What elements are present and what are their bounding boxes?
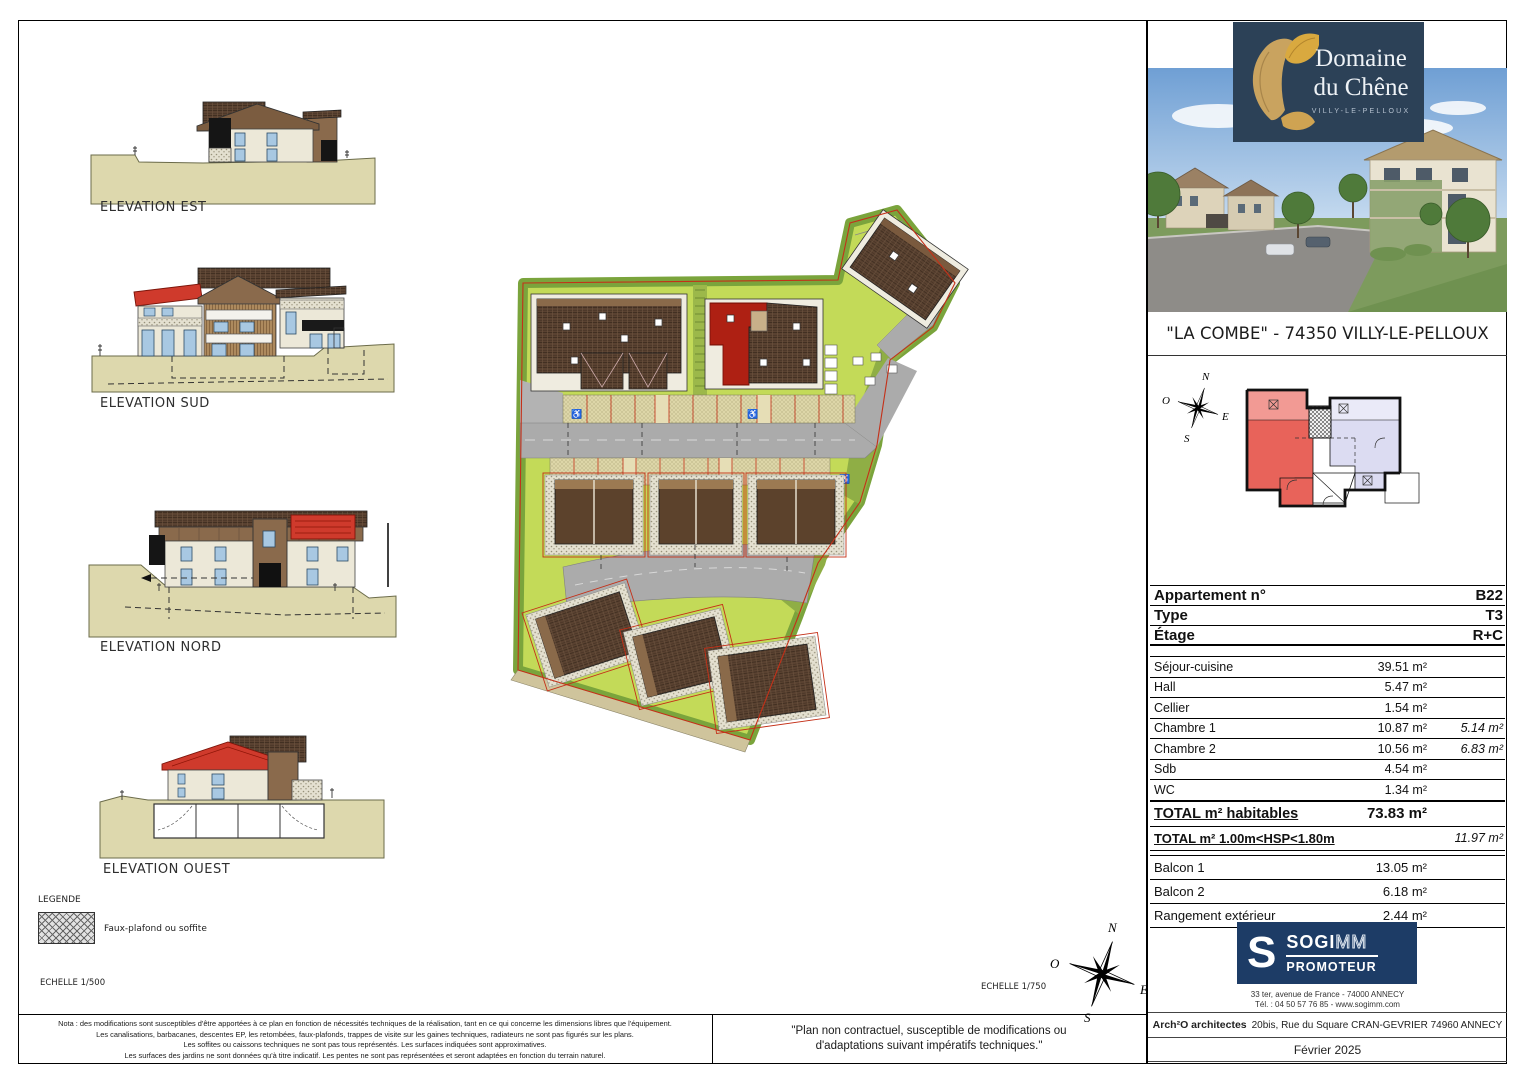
annex-area: 13.05 m² xyxy=(1349,860,1427,875)
legend-title: LEGENDE xyxy=(38,895,81,905)
annex-area: 6.18 m² xyxy=(1349,884,1427,899)
table-row-balcony1: Balcon 1 13.05 m² xyxy=(1150,856,1505,880)
promoter-address: 33 ter, avenue de France - 74000 ANNECY xyxy=(1148,990,1507,1000)
table-row-room: Chambre 1 10.87 m² 5.14 m² xyxy=(1150,719,1505,740)
table-row-apartment: Appartement n° B22 xyxy=(1150,586,1505,606)
room-area: 39.51 m² xyxy=(1349,660,1427,674)
total-area: 73.83 m² xyxy=(1349,805,1427,822)
sogimm-name: SOGIMM xyxy=(1286,932,1378,953)
room-area: 10.56 m² xyxy=(1349,742,1427,756)
nota-line: Nota : des modifications sont susceptibl… xyxy=(18,1019,712,1030)
project-logo: Domaine du Chêne VILLY-LE-PELLOUX xyxy=(1233,22,1424,142)
table-row-room: Séjour-cuisine 39.51 m² xyxy=(1150,657,1505,678)
handicap-icon: ♿ xyxy=(747,408,758,419)
nota-line: Les canalisations, barbacanes, descentes… xyxy=(18,1030,712,1041)
logo-title: Domaine du Chêne xyxy=(1303,44,1419,102)
building-b-roof-highlight xyxy=(705,299,823,389)
date-row: Février 2025 xyxy=(1148,1038,1507,1062)
elevation-nord-label: ELEVATION NORD xyxy=(100,640,221,655)
table-row-balcony2: Balcon 2 6.18 m² xyxy=(1150,880,1505,904)
legend-item-label: Faux-plafond ou soffite xyxy=(104,924,207,934)
elevation-ouest-label: ELEVATION OUEST xyxy=(103,862,230,877)
elevation-est-drawing xyxy=(85,78,380,210)
room-area: 4.54 m² xyxy=(1349,762,1427,776)
promoter-phone: Tél. : 04 50 57 76 85 - www.sogimm.com xyxy=(1148,1000,1507,1010)
locator-compass-icon: N O E S xyxy=(1156,368,1236,448)
table-row-total-habitable: TOTAL m² habitables 73.83 m² xyxy=(1150,801,1505,827)
scale-500-label: ECHELLE 1/500 xyxy=(40,978,105,988)
disclaimer-line: "Plan non contractuel, susceptible de mo… xyxy=(791,1024,1066,1039)
elevation-sud-drawing xyxy=(88,256,398,396)
table-row-room: Cellier 1.54 m² xyxy=(1150,698,1505,719)
room-label: Hall xyxy=(1150,680,1349,694)
room-hsp: 5.14 m² xyxy=(1427,721,1505,735)
room-area: 10.87 m² xyxy=(1349,721,1427,735)
floor-value: R+C xyxy=(1427,627,1505,644)
site-plan-drawing: ♿ ♿ ♿ xyxy=(505,195,1060,780)
apartment-number-label: Appartement n° xyxy=(1150,587,1427,604)
elevation-ouest-drawing xyxy=(92,730,392,862)
room-label: Chambre 2 xyxy=(1150,742,1349,756)
table-row-floor: Étage R+C xyxy=(1150,626,1505,646)
handicap-icon: ♿ xyxy=(571,408,582,419)
elevation-nord-drawing xyxy=(85,495,400,645)
table-gap xyxy=(1150,646,1505,657)
room-label: Sdb xyxy=(1150,762,1349,776)
total-label: TOTAL m² habitables xyxy=(1150,806,1349,822)
table-row-type: Type T3 xyxy=(1150,606,1505,626)
total-hsp-label: TOTAL m² 1.00m<HSP<1.80m xyxy=(1150,831,1349,846)
table-row-total-hsp: TOTAL m² 1.00m<HSP<1.80m 11.97 m² xyxy=(1150,827,1505,851)
legend-swatch xyxy=(38,912,95,944)
room-area: 1.54 m² xyxy=(1349,701,1427,715)
svg-text:S: S xyxy=(1184,433,1190,445)
nota-box: Nota : des modifications sont susceptibl… xyxy=(18,1014,712,1064)
svg-text:N: N xyxy=(1107,920,1118,935)
middle-row-houses xyxy=(543,473,846,557)
type-value: T3 xyxy=(1427,607,1505,624)
scale-750-label: ECHELLE 1/750 xyxy=(981,982,1046,992)
architect-row: Arch²O architectes 20bis, Rue du Square … xyxy=(1148,1012,1507,1038)
svg-text:E: E xyxy=(1221,411,1229,423)
annex-label: Balcon 1 xyxy=(1150,860,1349,875)
locator-floorplan-drawing xyxy=(1235,378,1425,538)
sogimm-divider xyxy=(1286,955,1378,957)
promoter-contact: 33 ter, avenue de France - 74000 ANNECY … xyxy=(1148,990,1507,1010)
architect-address: 20bis, Rue du Square CRAN-GEVRIER 74960 … xyxy=(1252,1020,1503,1031)
plan-sheet: ELEVATION EST ELEVATION SUD xyxy=(0,0,1527,1080)
sogimm-logo: S SOGIMM PROMOTEUR xyxy=(1237,922,1417,984)
elevation-est-label: ELEVATION EST xyxy=(100,200,206,215)
floor-label: Étage xyxy=(1150,627,1427,644)
svg-text:O: O xyxy=(1050,956,1060,971)
type-label: Type xyxy=(1150,607,1427,624)
room-label: WC xyxy=(1150,783,1349,797)
table-row-room: Sdb 4.54 m² xyxy=(1150,760,1505,781)
table-row-room: Hall 5.47 m² xyxy=(1150,678,1505,699)
table-row-room: Chambre 2 10.56 m² 6.83 m² xyxy=(1150,739,1505,760)
total-hsp-value: 11.97 m² xyxy=(1427,831,1505,845)
nota-line: Les surfaces des jardins ne sont données… xyxy=(18,1051,712,1062)
annex-label: Balcon 2 xyxy=(1150,884,1349,899)
sogimm-role: PROMOTEUR xyxy=(1286,960,1378,974)
nota-line: Les soffites ou caissons techniques ne s… xyxy=(18,1040,712,1051)
architect-name: Arch²O architectes xyxy=(1153,1019,1247,1031)
svg-text:N: N xyxy=(1201,371,1210,383)
disclaimer-line: d'adaptations suivant impératifs techniq… xyxy=(816,1039,1043,1054)
building-a-roof xyxy=(531,294,687,391)
svg-text:O: O xyxy=(1162,395,1170,407)
disclaimer-box: "Plan non contractuel, susceptible de mo… xyxy=(712,1014,1146,1064)
elevation-sud-label: ELEVATION SUD xyxy=(100,396,210,411)
annex-label: Rangement extérieur xyxy=(1150,908,1349,923)
sogimm-initial: S xyxy=(1247,931,1276,975)
room-label: Cellier xyxy=(1150,701,1349,715)
annex-area: 2.44 m² xyxy=(1349,908,1427,923)
room-label: Chambre 1 xyxy=(1150,721,1349,735)
logo-subtitle: VILLY-LE-PELLOUX xyxy=(1303,108,1419,115)
project-caption: "LA COMBE" - 74350 VILLY-LE-PELLOUX xyxy=(1148,312,1507,356)
room-hsp: 6.83 m² xyxy=(1427,742,1505,756)
room-label: Séjour-cuisine xyxy=(1150,660,1349,674)
room-area: 5.47 m² xyxy=(1349,680,1427,694)
room-area: 1.34 m² xyxy=(1349,783,1427,797)
apartment-number-value: B22 xyxy=(1427,587,1505,604)
apartment-table: Appartement n° B22 Type T3 Étage R+C Séj… xyxy=(1150,585,1505,928)
table-row-room: WC 1.34 m² xyxy=(1150,780,1505,801)
